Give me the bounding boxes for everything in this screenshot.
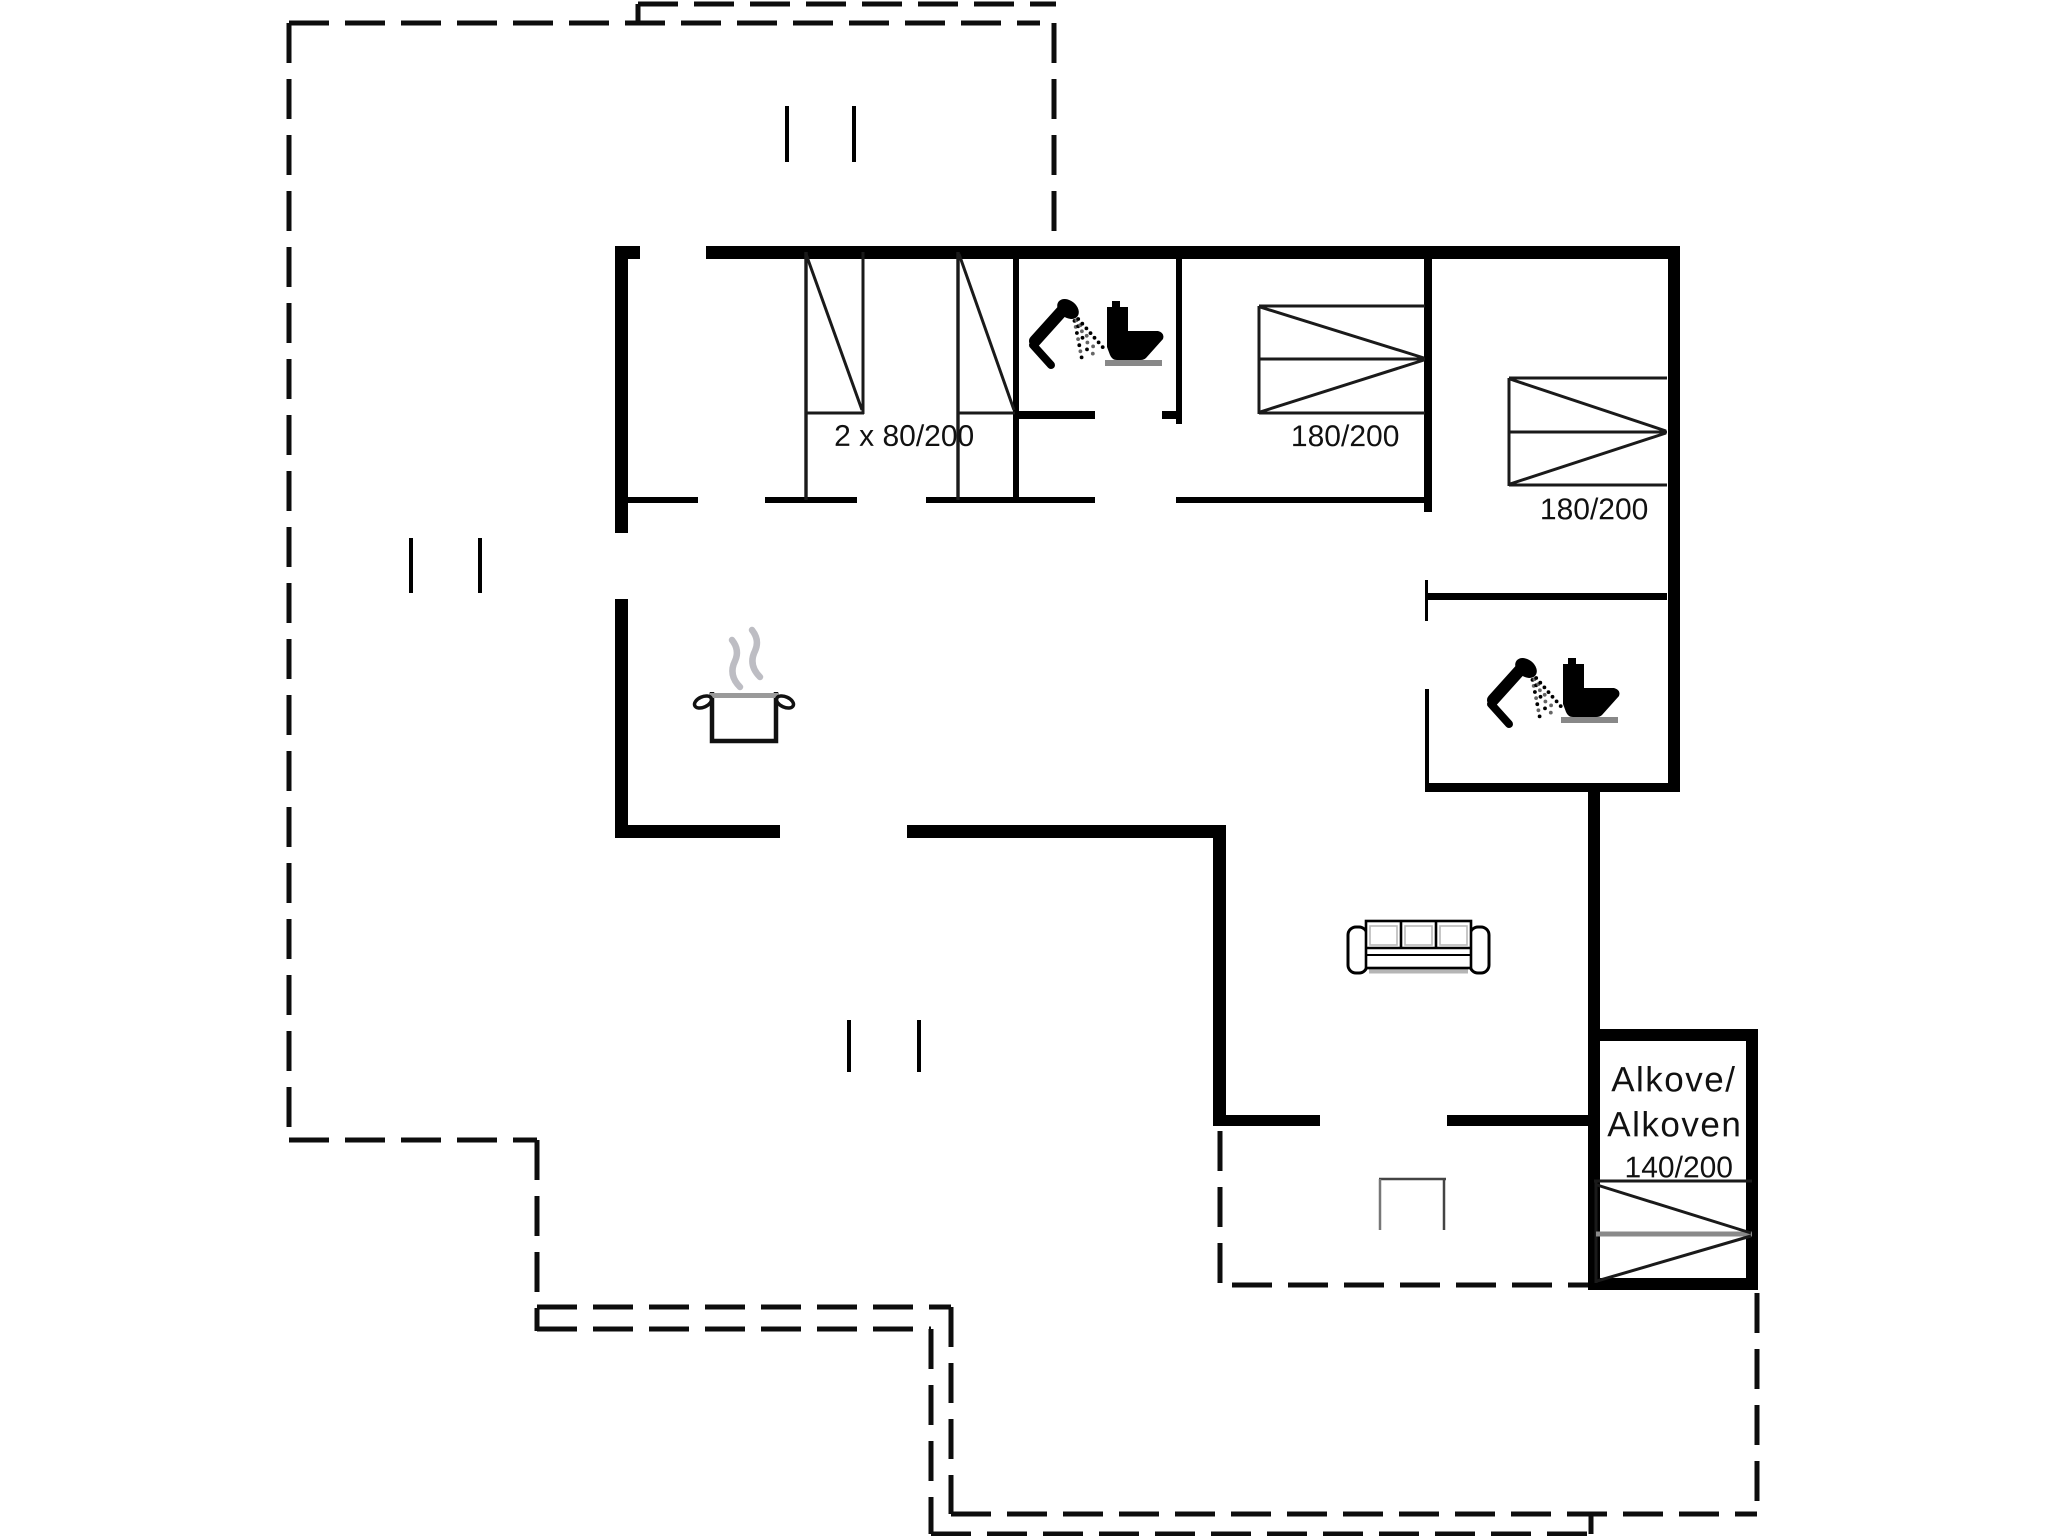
svg-text:180/200: 180/200 bbox=[1540, 493, 1648, 526]
svg-text:2 x 80/200: 2 x 80/200 bbox=[834, 420, 974, 453]
svg-text:180/200: 180/200 bbox=[1291, 420, 1399, 453]
svg-text:Alkoven: Alkoven bbox=[1607, 1105, 1742, 1144]
svg-text:Alkove/: Alkove/ bbox=[1611, 1060, 1736, 1099]
svg-text:140/200: 140/200 bbox=[1625, 1151, 1733, 1184]
